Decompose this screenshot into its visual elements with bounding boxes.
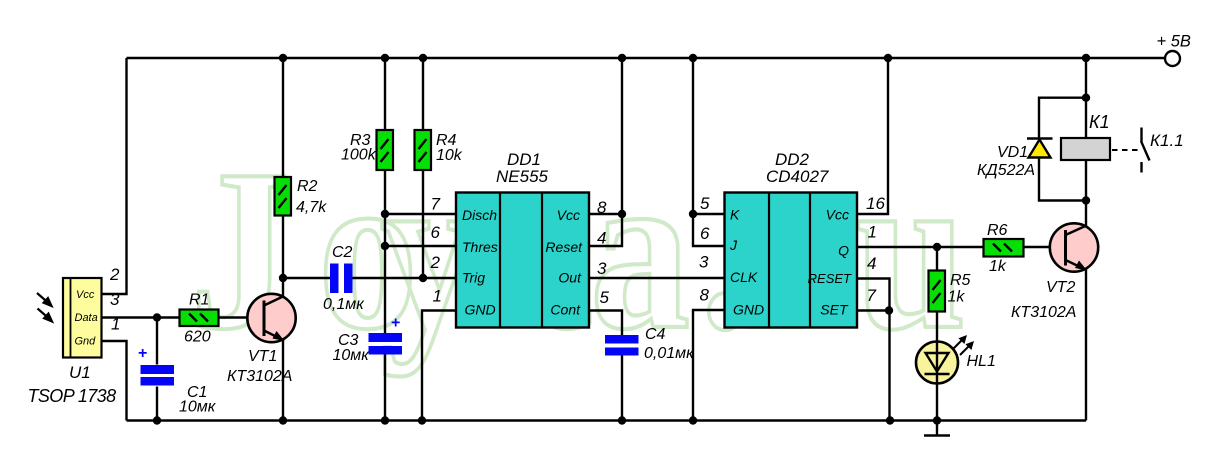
svg-text:16: 16	[866, 194, 885, 213]
svg-text:RESET: RESET	[808, 271, 852, 286]
svg-text:Out: Out	[558, 270, 582, 286]
svg-text:5: 5	[600, 288, 610, 307]
svg-text:Q: Q	[838, 243, 849, 259]
svg-text:K: K	[730, 207, 740, 223]
svg-text:+: +	[138, 345, 147, 362]
svg-text:C4: C4	[645, 326, 666, 343]
svg-text:0,1мк: 0,1мк	[323, 296, 365, 313]
svg-text:2: 2	[430, 253, 441, 272]
svg-text:620: 620	[184, 329, 211, 346]
svg-text:U1: U1	[69, 363, 91, 382]
svg-text:1k: 1k	[989, 258, 1007, 275]
svg-text:SET: SET	[820, 302, 849, 318]
svg-text:3: 3	[597, 259, 607, 278]
svg-text:Vcc: Vcc	[76, 289, 95, 301]
svg-text:CLK: CLK	[730, 269, 758, 285]
svg-text:+ 5В: + 5В	[1157, 33, 1191, 51]
svg-text:КТ3102А: КТ3102А	[227, 368, 292, 385]
svg-text:4: 4	[867, 254, 876, 273]
svg-text:GND: GND	[733, 302, 764, 318]
svg-text:7: 7	[867, 286, 877, 305]
svg-text:R5: R5	[950, 272, 971, 289]
svg-text:Vcc: Vcc	[826, 207, 849, 223]
svg-text:1k: 1k	[948, 289, 966, 306]
svg-text:6: 6	[431, 223, 441, 242]
svg-text:Thres: Thres	[462, 239, 498, 255]
svg-text:R1: R1	[189, 292, 209, 309]
svg-text:Data: Data	[75, 312, 98, 324]
svg-text:4: 4	[597, 229, 606, 248]
svg-text:Vcc: Vcc	[557, 207, 580, 223]
svg-text:R2: R2	[297, 178, 318, 195]
svg-text:J: J	[729, 237, 738, 253]
svg-text:10мк: 10мк	[179, 399, 217, 416]
svg-text:100k: 100k	[341, 147, 377, 164]
svg-text:4,7k: 4,7k	[296, 199, 327, 216]
svg-text:5: 5	[700, 194, 710, 213]
svg-text:CD4027: CD4027	[766, 167, 829, 186]
svg-text:GND: GND	[465, 302, 496, 318]
svg-text:К1.1: К1.1	[1150, 131, 1184, 150]
svg-text:HL1: HL1	[967, 353, 996, 370]
svg-text:6: 6	[700, 224, 710, 243]
svg-text:КД522А: КД522А	[977, 162, 1035, 179]
svg-text:2: 2	[109, 265, 120, 284]
svg-text:7: 7	[431, 195, 441, 214]
svg-text:Trig: Trig	[462, 270, 485, 286]
svg-text:Gnd: Gnd	[75, 335, 97, 347]
svg-text:NE555: NE555	[496, 167, 549, 186]
svg-text:КТ3102А: КТ3102А	[1011, 304, 1076, 321]
svg-text:TSOP 1738: TSOP 1738	[28, 386, 117, 406]
svg-text:VT2: VT2	[1046, 279, 1075, 296]
svg-text:Cont: Cont	[550, 302, 581, 318]
svg-text:Disch: Disch	[462, 207, 497, 223]
svg-text:К1: К1	[1089, 112, 1110, 132]
svg-text:VT1: VT1	[248, 348, 277, 365]
svg-text:1: 1	[868, 223, 877, 242]
svg-text:8: 8	[700, 286, 710, 305]
svg-text:C2: C2	[332, 244, 353, 261]
svg-text:+: +	[391, 315, 400, 332]
svg-text:1: 1	[433, 287, 442, 306]
svg-text:3: 3	[699, 253, 709, 272]
svg-text:10k: 10k	[436, 147, 463, 164]
svg-text:VD1: VD1	[997, 144, 1028, 161]
svg-text:10мк: 10мк	[333, 347, 371, 364]
svg-text:3: 3	[110, 290, 120, 309]
svg-text:Reset: Reset	[545, 239, 583, 255]
svg-text:0,01мк: 0,01мк	[644, 345, 695, 362]
svg-text:R6: R6	[987, 222, 1008, 239]
